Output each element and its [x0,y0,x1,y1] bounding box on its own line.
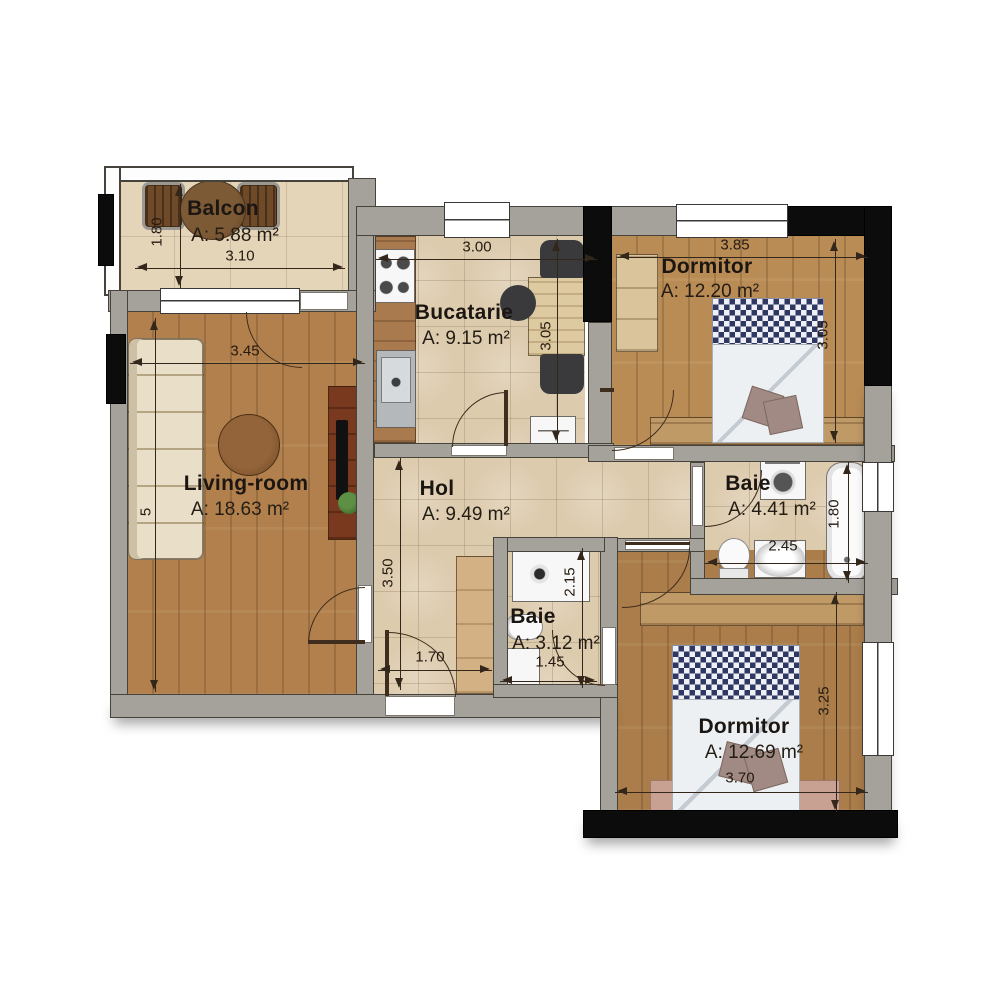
dim-balcony-width [135,268,345,269]
living-balcony-window [160,288,300,314]
kitchen-window [444,202,510,238]
structural-wall-balcony-left [98,194,114,266]
hall-name: Hol [420,477,455,501]
dim-kitchen-width-label: 3.00 [462,239,491,256]
dim-balcony-depth-label: 1.80 [149,217,166,246]
coffee-table [218,414,280,476]
dim-bedroom2-height [836,592,837,812]
wardrobe [616,254,658,352]
balcony-name: Balcon [187,197,259,221]
dim-bathroom1-width-label: 2.45 [768,538,797,555]
bathroom2-area: A: 3.12 m² [512,633,600,655]
kitchen-door-leaf [504,390,508,446]
wall-bathroom2-west [493,537,508,698]
living-room-name: Living-room [184,472,309,496]
dim-hall-width-label: 1.70 [415,649,444,666]
dim-living-height [155,318,156,692]
structural-wall-living-west [106,334,126,404]
structural-wall-east [864,206,892,386]
dim-hall-height [400,458,401,690]
balcony-area: A: 5.88 m² [191,225,279,247]
dim-bathroom1-height [848,462,849,583]
bed1-blanket [712,298,824,346]
hall-cabinet [456,556,494,694]
structural-wall-south [583,810,898,838]
bed2-blanket [672,645,800,701]
wall-kitchen-bedroom1 [588,322,612,445]
dim-bedroom1-width-label: 3.85 [720,237,749,254]
kitchen-sink-basin [381,357,411,403]
dim-kitchen-width [376,259,597,260]
dim-living-width [130,363,365,364]
opening-balcony-door [300,292,348,310]
sofa [128,338,204,560]
structural-wall-kitchen-bedroom1 [583,206,612,322]
tv [336,420,348,500]
hall-area: A: 9.49 m² [422,504,510,526]
bedroom2-window [862,642,894,756]
dim-living-height-label: 5 [138,508,155,516]
bedroom1-name: Dormitor [661,255,752,279]
wall-bathroom2-north [493,537,605,552]
entrance-door-leaf [385,630,389,696]
living-door-leaf [308,640,365,644]
dim-bedroom1-height-label: 3.05 [815,320,832,349]
dim-bedroom1-height [835,239,836,443]
dim-bedroom2-width-label: 3.70 [725,770,754,787]
bedroom2-door-leaf [625,542,690,545]
dim-kitchen-height-label: 3.05 [538,321,555,350]
dim-bathroom2-width-label: 1.45 [535,654,564,671]
toilet-big-bath [718,538,750,572]
dim-living-width-label: 3.45 [230,343,259,360]
dim-bedroom2-width [615,792,868,793]
kitchen-area: A: 9.15 m² [422,328,510,350]
balcony-railing-top [104,166,354,182]
dim-bathroom1-height-label: 1.80 [826,499,843,528]
floor-plan: 3.10 1.80 3.45 5 3.00 3.05 3.85 3.05 3.5… [0,0,1000,1000]
kitchen-name: Bucatarie [415,301,513,325]
dim-bathroom2-height [582,548,583,688]
opening-bathroom1-door [692,466,703,526]
dim-kitchen-height [557,239,558,443]
dim-hall-width [378,670,492,671]
bed1-pillow-b [763,395,803,435]
bathroom1-name: Baie [725,472,771,496]
dim-balcony-width-label: 3.10 [225,248,254,265]
dim-hall-height-label: 3.50 [380,558,397,587]
bedroom2-name: Dormitor [698,715,789,739]
bathroom2-name: Baie [510,605,556,629]
bedroom1-door-leaf [600,388,614,392]
bedroom1-area: A: 12.20 m² [661,281,759,303]
bathroom1-window [862,462,894,512]
dim-balcony-depth [180,184,181,288]
living-room-area: A: 18.63 m² [191,499,289,521]
bedroom2-area: A: 12.69 m² [705,742,803,764]
kitchen-chair-bottom [540,354,584,394]
dim-bedroom2-height-label: 3.25 [816,686,833,715]
dim-bathroom1-width [705,563,868,564]
opening-entrance-door [385,696,455,716]
dim-bathroom2-width [500,681,597,682]
dim-bathroom2-height-label: 2.15 [562,567,579,596]
wall-bathroom2-south [493,684,618,698]
bathroom1-area: A: 4.41 m² [728,499,816,521]
bedroom1-window [676,204,788,238]
